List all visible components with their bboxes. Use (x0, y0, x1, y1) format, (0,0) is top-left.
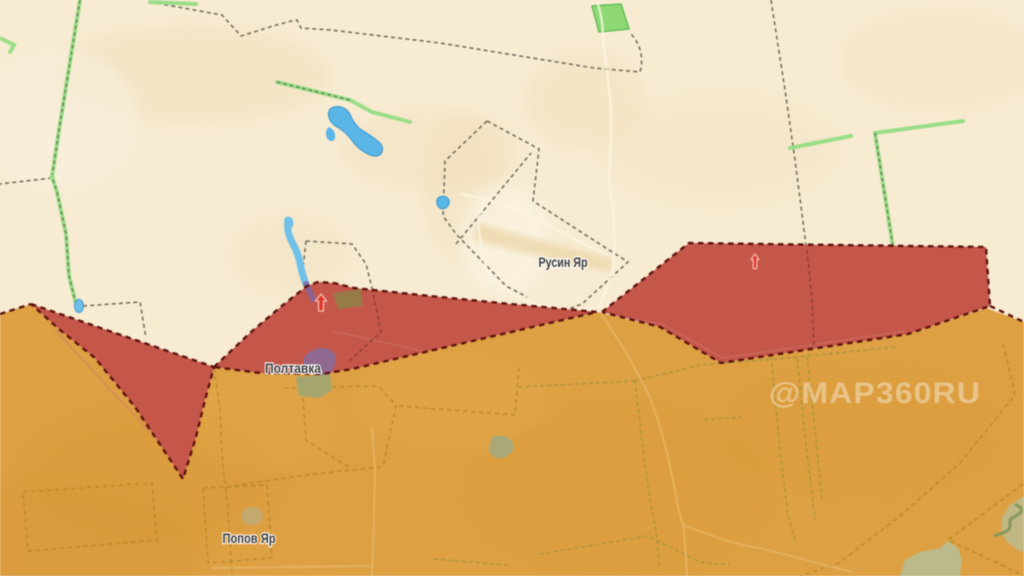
svg-text:Полтавка: Полтавка (265, 361, 321, 376)
svg-text:Русин Яр: Русин Яр (539, 255, 588, 270)
svg-text:Попов Яр: Попов Яр (223, 531, 276, 546)
svg-text:@MAP360RU: @MAP360RU (769, 377, 981, 410)
